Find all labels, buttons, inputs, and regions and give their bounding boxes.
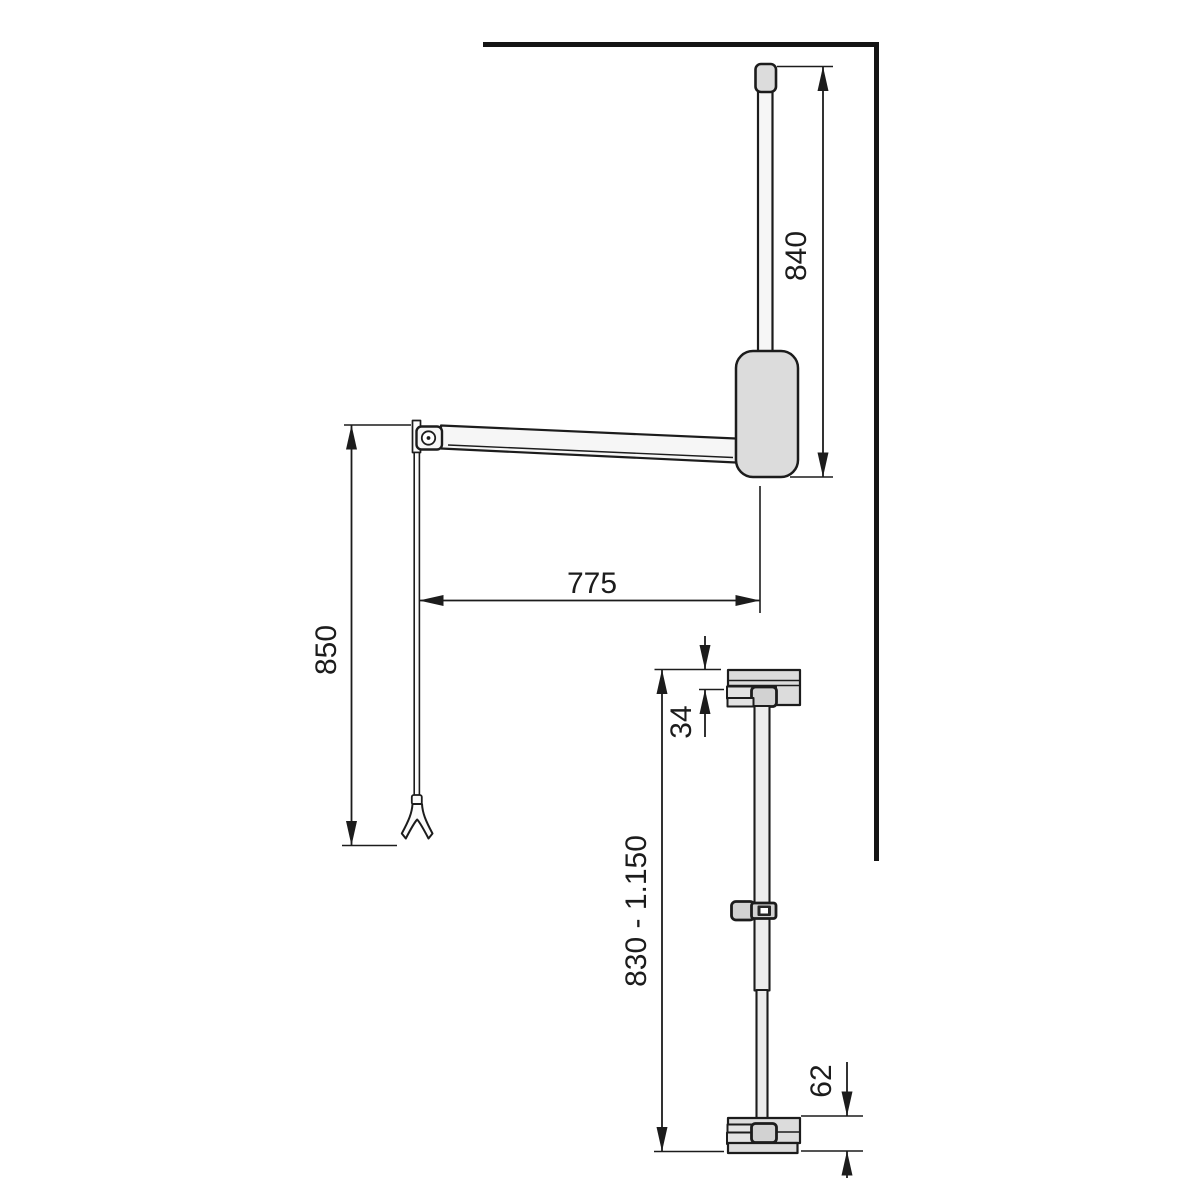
dim-850-label: 850 — [310, 625, 343, 675]
dim-840-label: 840 — [780, 231, 813, 281]
bottom-bracket-base-lip — [728, 1143, 798, 1153]
drawing-svg: 840 775 850 — [0, 0, 1200, 1200]
rod-end-cap — [756, 64, 777, 92]
top-bracket-clamp — [752, 687, 777, 707]
side-view: 34 830 - 1.150 62 — [620, 636, 863, 1178]
pivot-screw-center — [427, 436, 431, 440]
side-top-bracket — [727, 670, 800, 707]
side-rod-upper-tube — [755, 706, 770, 991]
dim-850: 850 — [310, 425, 411, 846]
dim-34-label: 34 — [665, 705, 698, 738]
dim-775: 775 — [419, 486, 760, 613]
dim-62: 62 — [801, 1062, 863, 1178]
dim-775-label: 775 — [567, 567, 617, 600]
dim-62-label: 62 — [805, 1064, 838, 1097]
dim-height-range: 830 - 1.150 — [620, 670, 724, 1152]
side-rod-lower-tube — [757, 990, 768, 1125]
dim-height-range-label: 830 - 1.150 — [620, 835, 653, 987]
lift-rod — [758, 85, 773, 355]
handle-fork — [402, 804, 433, 839]
dimension-drawing: 840 775 850 — [0, 0, 1200, 1200]
dim-34: 34 — [655, 636, 725, 739]
bottom-bracket-clamp — [752, 1124, 777, 1143]
support-arm — [441, 426, 736, 463]
lift-mechanism-body — [736, 351, 798, 477]
side-slider-clamp — [732, 902, 777, 921]
top-bracket-lower-plate — [728, 698, 754, 707]
slider-clamp-buckle-slot — [761, 908, 769, 914]
pull-rod — [414, 453, 419, 797]
side-bottom-bracket — [727, 1118, 800, 1153]
